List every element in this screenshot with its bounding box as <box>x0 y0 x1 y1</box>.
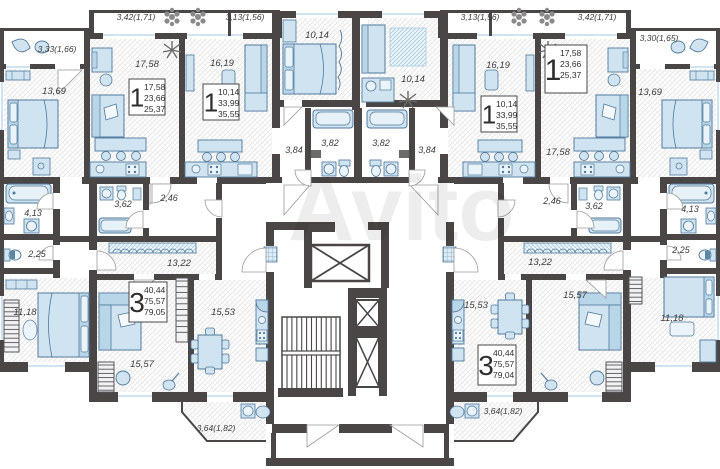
svg-text:1: 1 <box>130 82 144 112</box>
svg-text:23,66: 23,66 <box>560 59 582 69</box>
svg-text:3,64(1,82): 3,64(1,82) <box>484 406 523 416</box>
svg-text:33,99: 33,99 <box>496 110 518 120</box>
svg-text:10,14: 10,14 <box>305 30 329 41</box>
svg-text:25,37: 25,37 <box>560 70 582 80</box>
svg-text:75,57: 75,57 <box>144 296 166 306</box>
svg-text:35,55: 35,55 <box>496 121 518 131</box>
svg-text:16,19: 16,19 <box>210 58 234 69</box>
svg-text:40,44: 40,44 <box>493 348 515 358</box>
svg-text:23,66: 23,66 <box>144 93 166 103</box>
svg-text:2,46: 2,46 <box>159 193 178 203</box>
svg-text:16,19: 16,19 <box>486 60 510 71</box>
svg-text:79,05: 79,05 <box>144 307 166 317</box>
svg-text:4,13: 4,13 <box>681 204 699 214</box>
svg-text:17,58: 17,58 <box>144 82 166 92</box>
svg-text:25,37: 25,37 <box>144 104 166 114</box>
svg-text:15,57: 15,57 <box>130 359 154 370</box>
svg-text:3,82: 3,82 <box>372 138 390 148</box>
svg-text:13,22: 13,22 <box>167 258 191 269</box>
svg-text:75,57: 75,57 <box>493 359 515 369</box>
svg-text:1: 1 <box>482 99 496 129</box>
svg-text:10,14: 10,14 <box>218 87 240 97</box>
svg-text:3,42(1,71): 3,42(1,71) <box>117 12 156 22</box>
svg-text:13,69: 13,69 <box>638 87 662 98</box>
svg-text:3,30(1,65): 3,30(1,65) <box>640 33 679 43</box>
svg-text:13,69: 13,69 <box>42 86 66 97</box>
svg-text:15,53: 15,53 <box>211 307 235 318</box>
svg-text:3,62: 3,62 <box>585 201 603 211</box>
svg-text:4,13: 4,13 <box>24 208 42 218</box>
svg-text:3,82: 3,82 <box>321 138 339 148</box>
svg-text:40,44: 40,44 <box>144 285 166 295</box>
svg-text:17,58: 17,58 <box>560 48 582 58</box>
svg-text:3,84: 3,84 <box>285 145 303 155</box>
svg-text:3,42(1,71): 3,42(1,71) <box>578 12 617 22</box>
svg-text:3,62: 3,62 <box>114 199 132 209</box>
svg-text:3,13(1,56): 3,13(1,56) <box>226 12 265 22</box>
svg-text:1: 1 <box>545 54 562 87</box>
svg-text:15,57: 15,57 <box>563 290 587 301</box>
svg-text:3,13(1,56): 3,13(1,56) <box>461 12 500 22</box>
svg-text:3,64(1,82): 3,64(1,82) <box>197 423 236 433</box>
svg-text:35,55: 35,55 <box>218 109 240 119</box>
svg-text:2,25: 2,25 <box>27 249 47 259</box>
svg-text:17,58: 17,58 <box>135 59 159 70</box>
svg-text:3,84: 3,84 <box>418 145 436 155</box>
svg-text:Avito: Avito <box>288 158 515 260</box>
svg-text:10,14: 10,14 <box>401 74 425 85</box>
svg-text:1: 1 <box>204 87 218 117</box>
svg-text:15,53: 15,53 <box>464 300 488 311</box>
svg-text:10,14: 10,14 <box>496 99 518 109</box>
svg-text:2,25: 2,25 <box>671 245 691 255</box>
svg-text:11,18: 11,18 <box>660 313 684 324</box>
svg-text:11,18: 11,18 <box>13 307 37 318</box>
svg-text:33,99: 33,99 <box>218 98 240 108</box>
svg-text:3,33(1,66): 3,33(1,66) <box>38 44 77 54</box>
svg-text:3: 3 <box>129 287 145 318</box>
svg-text:17,58: 17,58 <box>546 147 570 158</box>
svg-text:2,46: 2,46 <box>542 196 561 206</box>
svg-text:3: 3 <box>478 350 494 381</box>
svg-text:13,22: 13,22 <box>528 257 552 268</box>
svg-text:79,04: 79,04 <box>493 370 515 380</box>
